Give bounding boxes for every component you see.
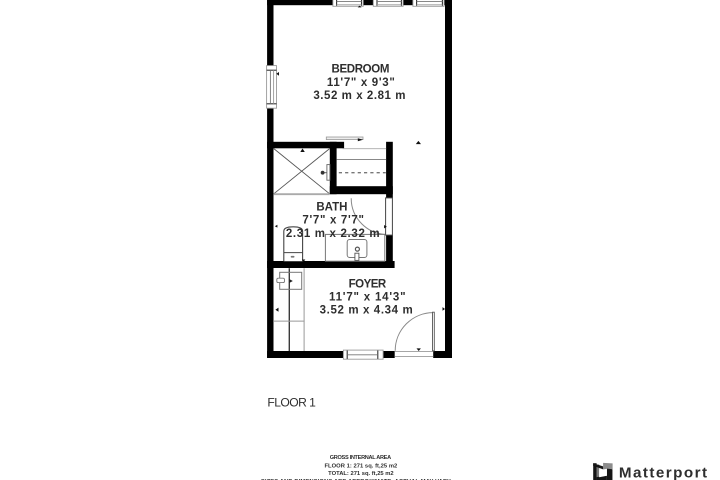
svg-text:TOTAL: 271 sq. ft,25 m2: TOTAL: 271 sq. ft,25 m2 <box>328 471 394 477</box>
svg-text:FLOOR 1: FLOOR 1 <box>267 396 316 410</box>
svg-text:FOYER: FOYER <box>349 278 387 290</box>
svg-text:Matterport: Matterport <box>619 464 709 480</box>
svg-text:2.31 m x 2.32 m: 2.31 m x 2.32 m <box>286 228 380 240</box>
svg-text:3.52 m x 2.81 m: 3.52 m x 2.81 m <box>313 90 406 102</box>
svg-text:3.52 m x 4.34 m: 3.52 m x 4.34 m <box>320 304 414 316</box>
svg-text:GROSS INTERNAL AREA: GROSS INTERNAL AREA <box>330 455 391 461</box>
svg-text:7'7" x 7'7": 7'7" x 7'7" <box>302 215 364 227</box>
svg-text:BEDROOM: BEDROOM <box>331 64 389 76</box>
svg-text:BATH: BATH <box>316 202 347 214</box>
svg-text:11'7" x 14'3": 11'7" x 14'3" <box>329 291 406 303</box>
svg-text:FLOOR 1: 271 sq. ft,25 m2: FLOOR 1: 271 sq. ft,25 m2 <box>324 464 397 470</box>
svg-text:11'7" x 9'3": 11'7" x 9'3" <box>327 77 396 89</box>
